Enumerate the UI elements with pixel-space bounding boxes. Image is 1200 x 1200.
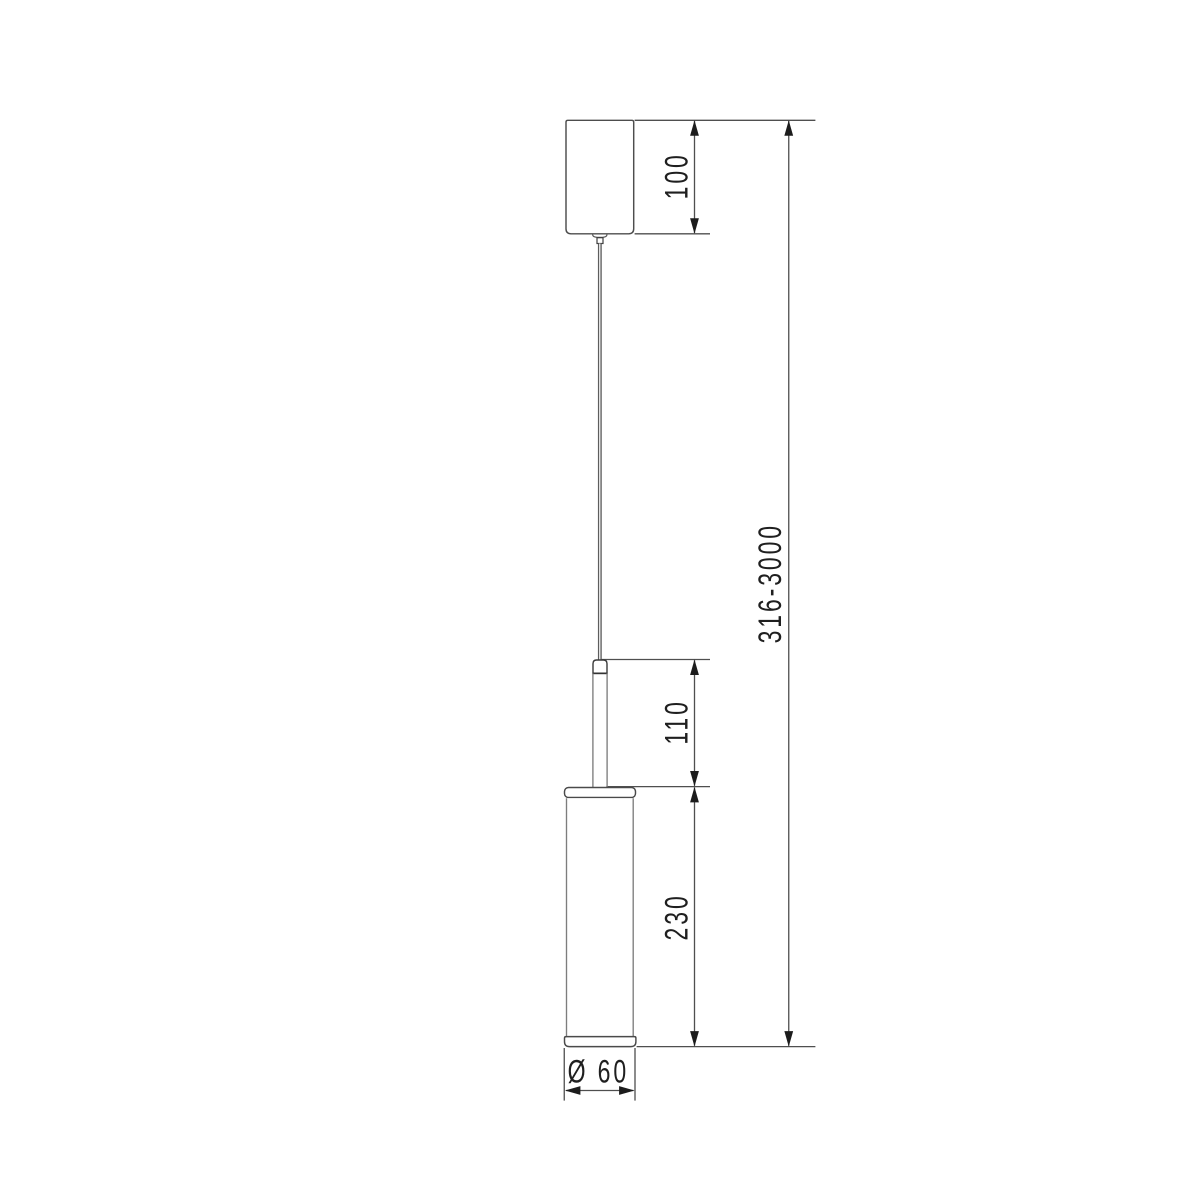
svg-text:316-3000: 316-3000: [752, 523, 788, 643]
svg-text:100: 100: [659, 152, 695, 199]
svg-text:Ø 60: Ø 60: [568, 1054, 629, 1090]
svg-text:230: 230: [659, 893, 695, 940]
svg-text:110: 110: [659, 699, 695, 744]
